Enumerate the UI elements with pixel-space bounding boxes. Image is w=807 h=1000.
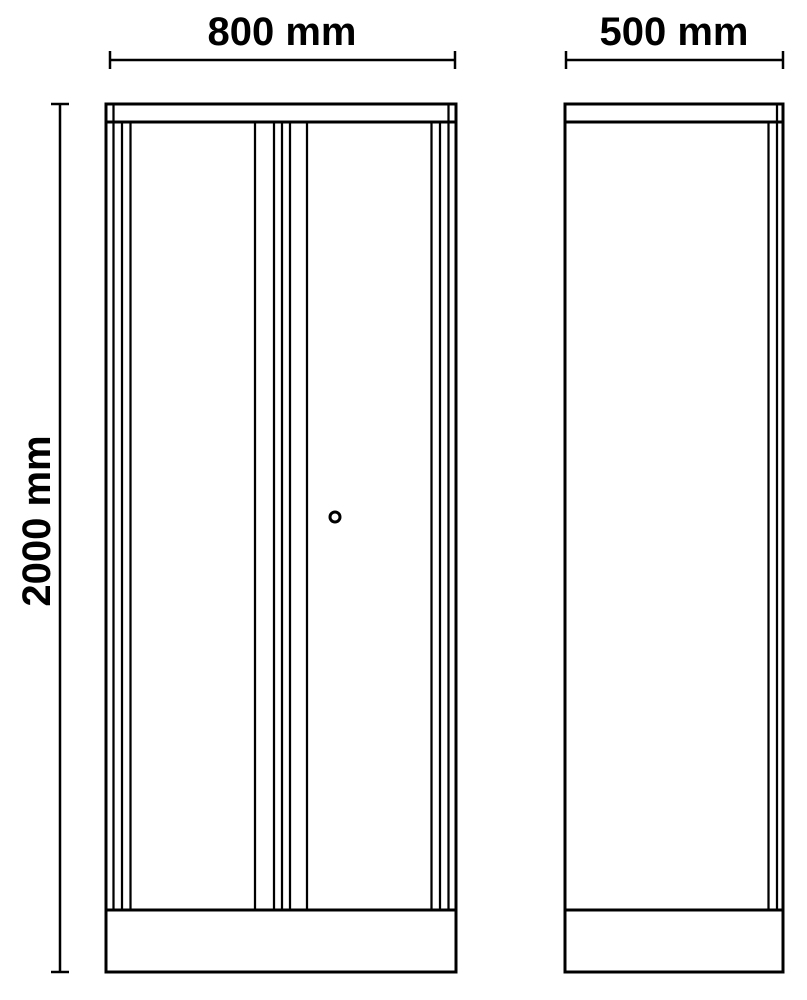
side-cabinet-outline xyxy=(565,104,783,972)
height-dimension-label: 2000 mm xyxy=(15,435,59,606)
side-plinth xyxy=(565,910,783,972)
technical-drawing-canvas: 800 mm 500 mm 2000 mm xyxy=(0,0,807,1000)
front-plinth xyxy=(106,910,456,972)
cabinet-front-view xyxy=(106,104,456,972)
width-dimension-label: 800 mm xyxy=(208,10,357,54)
door-lock-keyhole xyxy=(330,512,340,522)
depth-dimension-label: 500 mm xyxy=(600,10,749,54)
drawing-page: 800 mm 500 mm 2000 mm xyxy=(0,0,807,1000)
cabinet-side-view xyxy=(565,104,783,972)
